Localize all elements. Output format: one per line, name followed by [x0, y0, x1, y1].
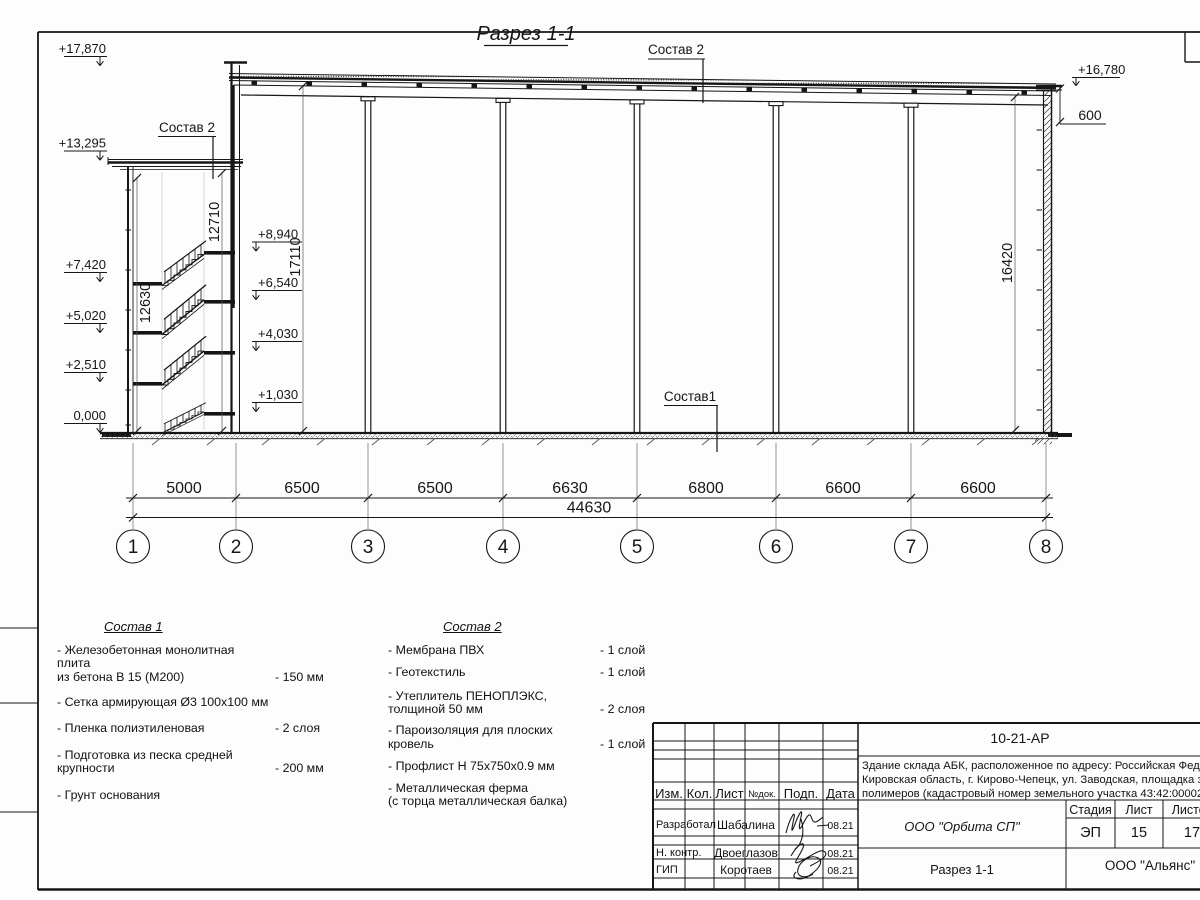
dimension-chain: 5000 6500 6500 6630 6800 6600 6600 44630: [126, 443, 1053, 529]
elevation-mark: +5,020: [64, 308, 107, 333]
legend-item: - Пленка полиэтиленовая- 2 слоя: [57, 722, 387, 736]
vertical-dimensions: 12630 12710 17110 16420: [133, 82, 1019, 435]
column: [361, 97, 375, 433]
col-podp: Подп.: [779, 786, 823, 801]
axis-bubble-5: 5: [632, 537, 643, 558]
column: [904, 103, 918, 433]
svg-text:+13,295: +13,295: [59, 136, 106, 151]
total-dimension: 44630: [567, 500, 612, 517]
sheets-value: 17: [1163, 825, 1200, 841]
date-ncontrol: 08.21: [823, 848, 858, 860]
legend-item: - Мембрана ПВХ- 1 слой: [388, 644, 688, 658]
corner-stamp-box: [1185, 32, 1200, 62]
date-developed: 08.21: [823, 820, 858, 832]
sostav1-label: Состав1: [664, 389, 716, 404]
dim-17110: 17110: [288, 237, 304, 276]
hall-columns: [361, 97, 918, 433]
legend-sostav1: Состав 1 - Железобетонная монолитная пли…: [57, 620, 387, 802]
column: [769, 102, 783, 433]
stair-landing: [204, 251, 235, 255]
stage-value: ЭП: [1066, 825, 1115, 841]
role-developed: Разработал: [656, 819, 716, 831]
project-description: Здание склада АБК, расположенное по адре…: [862, 760, 1200, 801]
span-dim: 6500: [417, 480, 453, 497]
span-dim: 6800: [688, 480, 724, 497]
ground-hatch: [152, 439, 1040, 446]
name-developed: Шабалина: [714, 818, 778, 832]
span-dim: 6630: [552, 480, 588, 497]
date-gip: 08.21: [823, 865, 858, 877]
role-gip: ГИП: [656, 864, 678, 876]
span-dimensions: 5000 6500 6500 6630 6800 6600 6600: [166, 480, 996, 497]
legend-item: - Геотекстиль- 1 слой: [388, 666, 688, 680]
legend-item: - Подготовка из песка средней крупности-…: [57, 749, 387, 776]
sheet-label: Лист: [1115, 803, 1163, 817]
col-list: Лист: [714, 786, 745, 801]
legend-item: - Сетка армирующая Ø3 100x100 мм: [57, 696, 387, 710]
sheets-label: Листов: [1163, 803, 1200, 817]
elevation-mark: +4,030: [252, 326, 302, 351]
span-dim: 6600: [960, 480, 996, 497]
column: [496, 98, 510, 433]
legend-item: - Грунт основания: [57, 789, 387, 803]
axis8-wall: [1035, 86, 1072, 445]
col-kol: Кол.: [685, 786, 714, 801]
legend-item: - Пароизоляция для плоских кровель- 1 сл…: [388, 724, 688, 751]
sostav2-label-left: Состав 2: [159, 120, 215, 135]
axis-bubble-1: 1: [128, 537, 139, 558]
svg-text:+16,780: +16,780: [1078, 62, 1125, 77]
span-dim: 5000: [166, 480, 202, 497]
company-name: ООО "Альянс": [1066, 858, 1200, 873]
legend1-title: Состав 1: [104, 620, 163, 634]
drawing-name: Разрез 1-1: [858, 862, 1066, 877]
stair-landing: [204, 351, 235, 355]
elevation-mark: +17,870: [59, 41, 107, 66]
grid-axes: 1 2 3 4 5 6 7 8: [117, 530, 1063, 563]
elevation-mark: +1,030: [252, 387, 302, 412]
elevation-mark: +16,780: [1072, 62, 1125, 86]
role-ncontrol: Н. контр.: [656, 847, 701, 859]
signature-2: [791, 844, 826, 879]
dim-16420: 16420: [1000, 243, 1016, 283]
name-gip: Коротаев: [714, 863, 778, 877]
view-title-text: Разрез 1-1: [476, 23, 575, 45]
dim-12710: 12710: [207, 202, 223, 242]
stage-label: Стадия: [1066, 803, 1115, 817]
elevation-mark: +13,295: [59, 136, 107, 161]
svg-text:+2,510: +2,510: [66, 357, 106, 372]
sostav2-label-top: Состав 2: [648, 42, 704, 57]
col-izm: Изм.: [653, 786, 685, 801]
abk-floors: [133, 251, 235, 416]
signature-1: [786, 812, 823, 849]
svg-text:+4,030: +4,030: [258, 326, 298, 341]
legend-item: - Железобетонная монолитная плита из бет…: [57, 644, 387, 685]
column: [630, 100, 644, 433]
design-org: ООО "Орбита СП": [858, 819, 1066, 834]
axis-bubble-6: 6: [771, 537, 782, 558]
drawing-sheet: Разрез 1-1: [0, 0, 1200, 900]
parapet-dimension: 600: [1056, 85, 1106, 127]
legend2-title: Состав 2: [443, 620, 502, 634]
floor-slab: [100, 433, 1058, 445]
axis-bubble-4: 4: [498, 537, 509, 558]
legend-item: - Утеплитель ПЕНОПЛЭКС, толщиной 50 мм- …: [388, 690, 688, 717]
elevation-mark: +2,510: [64, 357, 107, 382]
svg-text:+1,030: +1,030: [258, 387, 298, 402]
legend-sostav2: Состав 2 - Мембрана ПВХ- 1 слой - Геотек…: [388, 620, 688, 809]
span-dim: 6600: [825, 480, 861, 497]
axis-bubble-7: 7: [906, 537, 917, 558]
name-ncontrol: Двоеглазов: [714, 846, 778, 860]
view-title: Разрез 1-1: [476, 23, 575, 46]
axis-bubble-2: 2: [231, 537, 242, 558]
stair-landing: [204, 300, 235, 304]
legend-item: - Профлист Н 75х750х0.9 мм: [388, 760, 688, 774]
legend-item: - Металлическая ферма (с торца металличе…: [388, 782, 688, 809]
svg-text:0,000: 0,000: [73, 408, 106, 423]
elevation-mark: 0,000: [64, 408, 107, 433]
axis2-wall: [224, 63, 247, 434]
svg-text:+5,020: +5,020: [66, 308, 106, 323]
dim-12630: 12630: [138, 283, 154, 323]
axis-bubble-3: 3: [363, 537, 374, 558]
stair-landing: [204, 412, 235, 416]
elevation-mark: +6,540: [252, 275, 302, 300]
sheet-value: 15: [1115, 825, 1163, 841]
abk-left-wall: [102, 167, 133, 435]
stair-flights: [162, 241, 206, 436]
doc-code: 10-21-АР: [858, 730, 1182, 746]
span-dim: 6500: [284, 480, 320, 497]
axis-bubble-8: 8: [1041, 537, 1052, 558]
svg-text:+17,870: +17,870: [59, 41, 106, 56]
col-ndoc: №док.: [745, 789, 779, 800]
svg-text:+7,420: +7,420: [66, 257, 106, 272]
svg-text:600: 600: [1078, 107, 1102, 123]
elevation-mark: +7,420: [64, 257, 107, 282]
col-data: Дата: [823, 786, 858, 801]
